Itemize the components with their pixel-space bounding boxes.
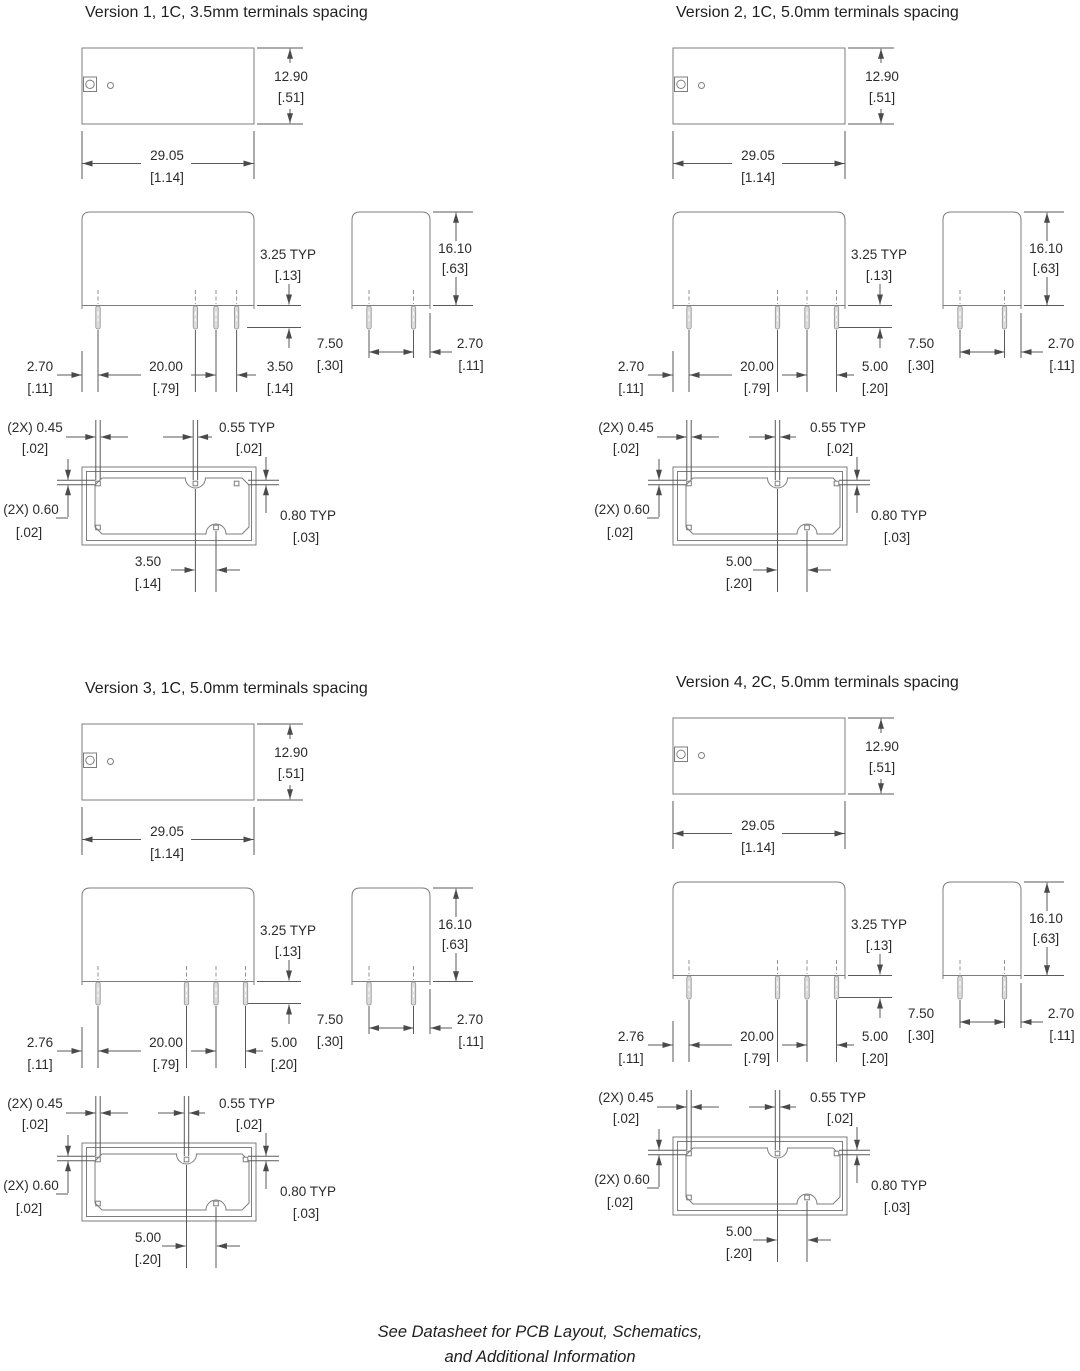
dim-top-height-in: [.51] — [869, 90, 895, 105]
dim-end-height-in: [.63] — [1033, 931, 1059, 946]
dim-slot-w-in: [.02] — [613, 1111, 639, 1126]
dim-slot-h-mm: (2X) 0.60 — [3, 1178, 59, 1193]
dim-slot-h2-in: [.03] — [884, 530, 910, 545]
dim-top-height-mm: 12.90 — [274, 745, 308, 760]
dim-slot-w-in: [.02] — [613, 441, 639, 456]
dim-bottom-pitch-in: [.20] — [726, 1246, 752, 1261]
dim-top-height-mm: 12.90 — [274, 69, 308, 84]
dim-left-offset-in: [.11] — [618, 1051, 643, 1066]
end-view — [352, 212, 473, 358]
dim-end-spacing-mm: 7.50 — [317, 1012, 343, 1027]
panel-title: Version 1, 1C, 3.5mm terminals spacing — [85, 4, 368, 21]
dim-bottom-pitch-mm: 5.00 — [726, 1224, 752, 1239]
dim-shoulder-mm: 3.25 TYP — [851, 917, 907, 932]
dim-span-mm: 20.00 — [149, 359, 183, 374]
dim-top-height-in: [.51] — [869, 760, 895, 775]
panel-title: Version 4, 2C, 5.0mm terminals spacing — [676, 674, 959, 691]
dim-left-offset-mm: 2.70 — [618, 359, 644, 374]
dim-left-offset-in: [.11] — [27, 381, 52, 396]
dim-slot-w-in: [.02] — [22, 1117, 48, 1132]
dim-slot-h-mm: (2X) 0.60 — [594, 1172, 650, 1187]
dim-end-height-mm: 16.10 — [1029, 911, 1063, 926]
dim-slot-h2-mm: 0.80 TYP — [871, 1178, 927, 1193]
dim-span-in: [.79] — [153, 381, 179, 396]
dim-end-height-mm: 16.10 — [438, 241, 472, 256]
dim-bottom-pitch-in: [.14] — [135, 576, 161, 591]
dim-slot-h2-in: [.03] — [293, 1206, 319, 1221]
top-view — [82, 48, 303, 179]
dim-left-offset-mm: 2.76 — [27, 1035, 53, 1050]
dim-slot-h-mm: (2X) 0.60 — [3, 502, 59, 517]
dim-shoulder-mm: 3.25 TYP — [851, 247, 907, 262]
bottom-view-cavity — [686, 420, 840, 592]
dim-slot-w-mm: (2X) 0.45 — [598, 1090, 654, 1105]
dim-end-height-mm: 16.10 — [438, 917, 472, 932]
dim-end-height-in: [.63] — [442, 261, 468, 276]
bottom-view-cavity — [95, 1096, 249, 1268]
panel-title: Version 3, 1C, 5.0mm terminals spacing — [85, 680, 368, 697]
panel-version-3: Version 3, 1C, 5.0mm terminals spacing 1… — [0, 676, 540, 1336]
dim-span-mm: 20.00 — [740, 359, 774, 374]
dim-slot-h2-mm: 0.80 TYP — [280, 508, 336, 523]
dim-shoulder-mm: 3.25 TYP — [260, 247, 316, 262]
footer-note: See Datasheet for PCB Layout, Schematics… — [0, 1320, 1080, 1370]
dim-slot-w2-mm: 0.55 TYP — [219, 1096, 275, 1111]
dim-bottom-pitch-mm: 5.00 — [726, 554, 752, 569]
top-view — [82, 724, 303, 855]
dim-top-width-mm: 29.05 — [741, 148, 775, 163]
dim-shoulder-in: [.13] — [866, 938, 892, 953]
dim-slot-h-in: [.02] — [16, 525, 42, 540]
dim-slot-h-in: [.02] — [607, 1195, 633, 1210]
dim-end-spacing-mm: 7.50 — [317, 336, 343, 351]
end-view — [943, 882, 1064, 1028]
dim-span-in: [.79] — [744, 381, 770, 396]
dim-pitch-mm: 3.50 — [267, 359, 293, 374]
dim-slot-w-mm: (2X) 0.45 — [598, 420, 654, 435]
dim-slot-w-mm: (2X) 0.45 — [7, 420, 63, 435]
dim-end-spacing-mm: 7.50 — [908, 336, 934, 351]
dim-end-edge-in: [.11] — [458, 358, 483, 373]
dim-pitch-in: [.20] — [862, 1051, 888, 1066]
dim-top-width-mm: 29.05 — [150, 824, 184, 839]
footer-note-line2: and Additional Information — [0, 1345, 1080, 1370]
dim-top-width-mm: 29.05 — [150, 148, 184, 163]
dim-bottom-pitch-mm: 3.50 — [135, 554, 161, 569]
dim-top-width-in: [1.14] — [150, 170, 184, 185]
dim-top-height-mm: 12.90 — [865, 69, 899, 84]
dim-slot-h2-mm: 0.80 TYP — [280, 1184, 336, 1199]
dim-slot-h-in: [.02] — [16, 1201, 42, 1216]
dim-bottom-pitch-in: [.20] — [726, 576, 752, 591]
panel-version-2: Version 2, 1C, 5.0mm terminals spacing 1… — [591, 0, 1080, 660]
end-view — [352, 888, 473, 1034]
dim-slot-w2-in: [.02] — [236, 1117, 262, 1132]
dim-end-edge-in: [.11] — [458, 1034, 483, 1049]
dim-left-offset-mm: 2.76 — [618, 1029, 644, 1044]
dim-slot-h2-mm: 0.80 TYP — [871, 508, 927, 523]
dim-top-height-mm: 12.90 — [865, 739, 899, 754]
dim-end-spacing-in: [.30] — [317, 358, 343, 373]
dim-left-offset-mm: 2.70 — [27, 359, 53, 374]
dim-end-height-mm: 16.10 — [1029, 241, 1063, 256]
dim-end-spacing-mm: 7.50 — [908, 1006, 934, 1021]
dim-top-height-in: [.51] — [278, 90, 304, 105]
dim-end-height-in: [.63] — [1033, 261, 1059, 276]
dim-left-offset-in: [.11] — [27, 1057, 52, 1072]
dim-pitch-mm: 5.00 — [271, 1035, 297, 1050]
dim-pitch-mm: 5.00 — [862, 359, 888, 374]
dim-top-width-in: [1.14] — [150, 846, 184, 861]
dim-pitch-in: [.20] — [271, 1057, 297, 1072]
dim-end-edge-in: [.11] — [1049, 358, 1074, 373]
dim-slot-h-mm: (2X) 0.60 — [594, 502, 650, 517]
dim-left-offset-in: [.11] — [618, 381, 643, 396]
dim-slot-w2-mm: 0.55 TYP — [219, 420, 275, 435]
dim-top-width-mm: 29.05 — [741, 818, 775, 833]
dim-end-height-in: [.63] — [442, 937, 468, 952]
dim-end-spacing-in: [.30] — [908, 358, 934, 373]
dim-shoulder-mm: 3.25 TYP — [260, 923, 316, 938]
dim-top-height-in: [.51] — [278, 766, 304, 781]
panel-version-1: Version 1, 1C, 3.5mm terminals spacing 1… — [0, 0, 540, 660]
dim-bottom-pitch-mm: 5.00 — [135, 1230, 161, 1245]
dim-slot-w-in: [.02] — [22, 441, 48, 456]
dim-slot-h2-in: [.03] — [884, 1200, 910, 1215]
dim-end-edge-mm: 2.70 — [1048, 336, 1074, 351]
dim-bottom-pitch-in: [.20] — [135, 1252, 161, 1267]
dim-span-in: [.79] — [153, 1057, 179, 1072]
bottom-view-cavity — [95, 420, 249, 592]
dim-slot-w2-in: [.02] — [827, 1111, 853, 1126]
bottom-view-cavity — [686, 1090, 840, 1262]
footer-note-line1: See Datasheet for PCB Layout, Schematics… — [0, 1320, 1080, 1345]
dim-pitch-mm: 5.00 — [862, 1029, 888, 1044]
dim-slot-h-in: [.02] — [607, 525, 633, 540]
dim-end-spacing-in: [.30] — [908, 1028, 934, 1043]
dim-top-width-in: [1.14] — [741, 170, 775, 185]
dim-top-width-in: [1.14] — [741, 840, 775, 855]
dim-end-edge-mm: 2.70 — [1048, 1006, 1074, 1021]
dim-slot-w-mm: (2X) 0.45 — [7, 1096, 63, 1111]
dim-shoulder-in: [.13] — [866, 268, 892, 283]
dim-end-edge-mm: 2.70 — [457, 336, 483, 351]
dim-end-spacing-in: [.30] — [317, 1034, 343, 1049]
dim-slot-h2-in: [.03] — [293, 530, 319, 545]
dim-slot-w2-in: [.02] — [827, 441, 853, 456]
dim-slot-w2-mm: 0.55 TYP — [810, 420, 866, 435]
dim-span-in: [.79] — [744, 1051, 770, 1066]
dim-span-mm: 20.00 — [740, 1029, 774, 1044]
panel-version-4: Version 4, 2C, 5.0mm terminals spacing 1… — [591, 670, 1080, 1330]
dim-pitch-in: [.14] — [267, 381, 293, 396]
end-view — [943, 212, 1064, 358]
dim-pitch-in: [.20] — [862, 381, 888, 396]
dim-shoulder-in: [.13] — [275, 268, 301, 283]
dim-end-edge-mm: 2.70 — [457, 1012, 483, 1027]
top-view — [673, 718, 894, 849]
panel-title: Version 2, 1C, 5.0mm terminals spacing — [676, 4, 959, 21]
dim-end-edge-in: [.11] — [1049, 1028, 1074, 1043]
dim-slot-w2-mm: 0.55 TYP — [810, 1090, 866, 1105]
top-view — [673, 48, 894, 179]
dim-slot-w2-in: [.02] — [236, 441, 262, 456]
dim-shoulder-in: [.13] — [275, 944, 301, 959]
dim-span-mm: 20.00 — [149, 1035, 183, 1050]
